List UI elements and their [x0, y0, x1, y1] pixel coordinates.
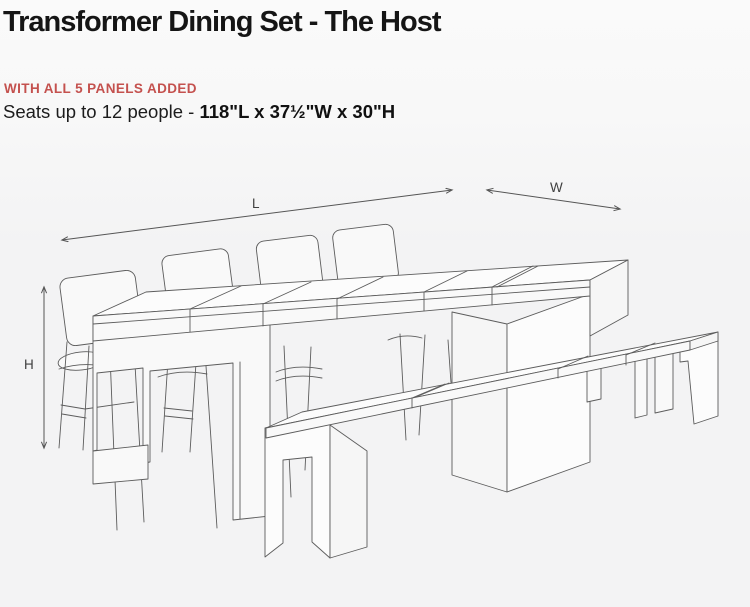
capacity-line: Seats up to 12 people - 118"L x 37½"W x …: [3, 101, 395, 123]
height-dimension: H: [24, 287, 44, 448]
product-dimension-page: L W H: [0, 0, 750, 607]
width-label: W: [550, 180, 563, 195]
page-title: Transformer Dining Set - The Host: [3, 6, 441, 39]
width-dimension: W: [487, 180, 620, 209]
bench-leg-post: [655, 348, 673, 413]
height-label: H: [24, 357, 34, 372]
bench-leg-post: [635, 357, 647, 418]
table-right-leg-front: [507, 294, 590, 492]
length-label: L: [252, 196, 260, 211]
panels-badge: WITH ALL 5 PANELS ADDED: [4, 81, 197, 96]
table-right-leg-side: [452, 312, 507, 492]
bench-left-leg-side: [330, 425, 367, 558]
table-left-leg-rail: [93, 445, 148, 484]
dimensions-text: 118"L x 37½"W x 30"H: [199, 101, 395, 122]
capacity-text: Seats up to 12 people -: [3, 101, 199, 122]
